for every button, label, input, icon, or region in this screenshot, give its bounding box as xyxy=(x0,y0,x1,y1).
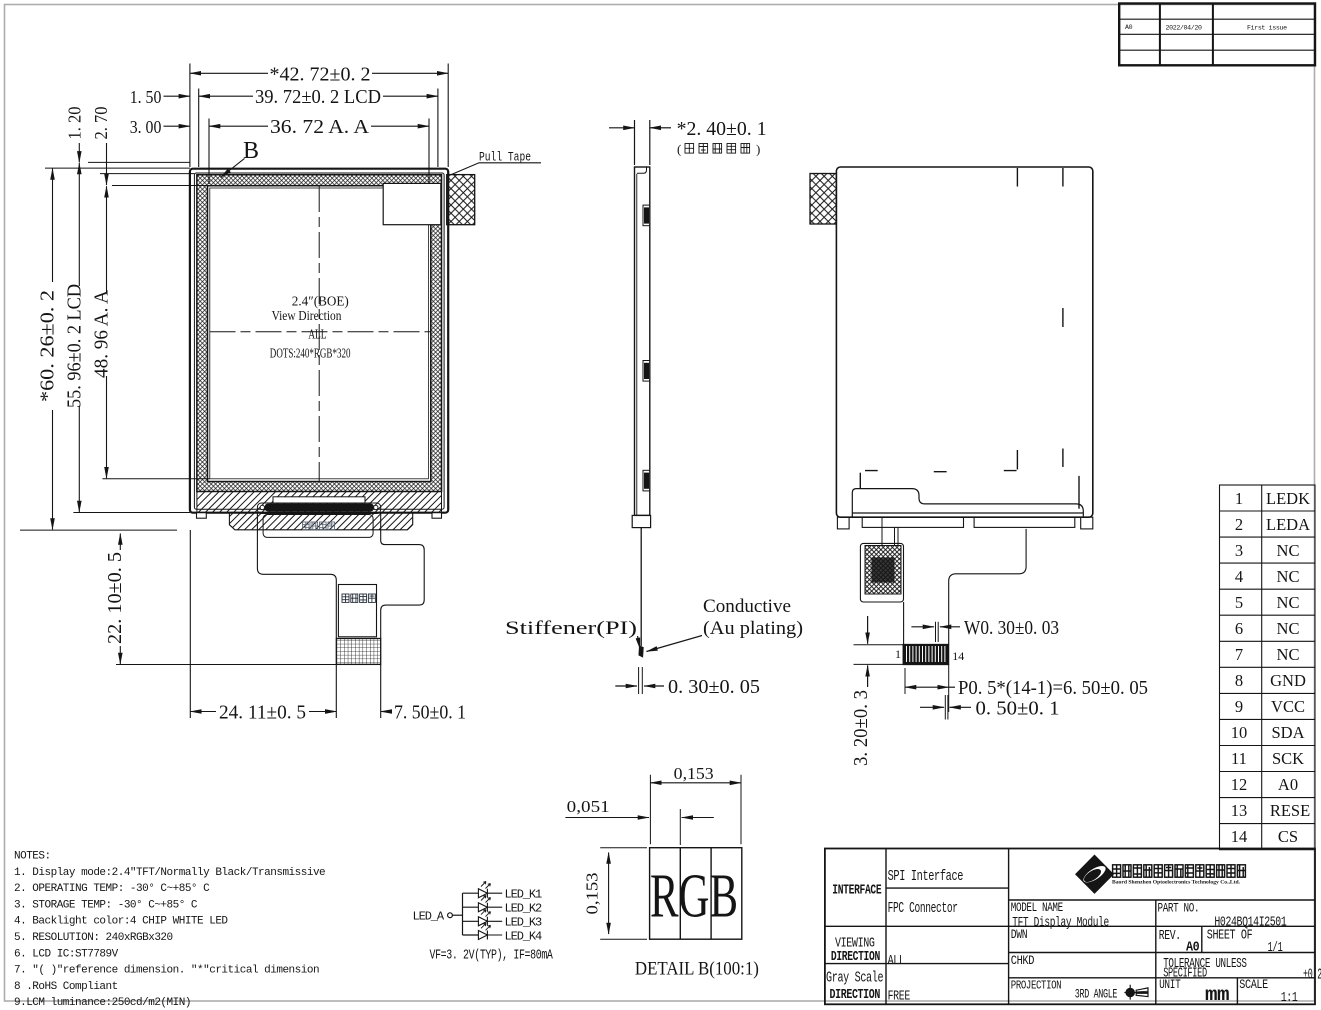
svg-text:SDA: SDA xyxy=(1271,723,1304,742)
svg-text:1. Display mode:2.4″TFT/Normal: 1. Display mode:2.4″TFT/Normally Black/T… xyxy=(14,867,325,879)
svg-text:4. Backlight color:4 CHIP WHIT: 4. Backlight color:4 CHIP WHITE LED xyxy=(14,916,228,928)
svg-text:3. STORAGE TEMP: -30° C~+85° C: 3. STORAGE TEMP: -30° C~+85° C xyxy=(14,899,198,911)
svg-text:PROJECTION: PROJECTION xyxy=(1011,979,1062,993)
svg-text:3. 20±0. 3: 3. 20±0. 3 xyxy=(850,690,872,766)
svg-text:Gray Scale: Gray Scale xyxy=(826,970,884,987)
svg-text:DOTS:240*RGB*320: DOTS:240*RGB*320 xyxy=(270,346,351,361)
svg-text:12: 12 xyxy=(1231,775,1248,794)
svg-text:mm: mm xyxy=(1205,984,1229,1006)
svg-text:LEDA: LEDA xyxy=(1266,515,1310,534)
svg-text:1. 50: 1. 50 xyxy=(130,87,162,107)
svg-text:3: 3 xyxy=(1235,541,1243,560)
svg-text:2. OPERATING TEMP: -30° C~+85°: 2. OPERATING TEMP: -30° C~+85° C xyxy=(14,883,210,895)
svg-text:48. 96 A. A: 48. 96 A. A xyxy=(91,289,113,378)
svg-text:22. 10±0. 5: 22. 10±0. 5 xyxy=(104,552,126,644)
svg-text:DIRECTION: DIRECTION xyxy=(831,949,880,965)
svg-text:LED_K4: LED_K4 xyxy=(505,929,543,943)
svg-text:7. ″( )″reference dimension. ″: 7. ″( )″reference dimension. ″*″critical… xyxy=(14,965,319,977)
svg-text:39. 72±0. 2 LCD: 39. 72±0. 2 LCD xyxy=(255,86,381,108)
svg-text:VF=3. 2V(TYP), IF=80mA: VF=3. 2V(TYP), IF=80mA xyxy=(430,948,554,963)
svg-text:LED_K2: LED_K2 xyxy=(505,902,543,916)
svg-text:Pull Tape: Pull Tape xyxy=(479,150,531,165)
svg-text:LED_K1: LED_K1 xyxy=(505,888,543,902)
svg-text:SPI Interface: SPI Interface xyxy=(888,869,964,885)
svg-text:±0.2: ±0.2 xyxy=(1303,967,1321,984)
svg-text:NC: NC xyxy=(1277,541,1300,560)
svg-text:36. 72 A. A: 36. 72 A. A xyxy=(270,116,370,138)
svg-text:10: 10 xyxy=(1231,723,1248,742)
svg-text:SCK: SCK xyxy=(1272,749,1304,768)
svg-text:A0: A0 xyxy=(1186,941,1200,956)
svg-text:2. 70: 2. 70 xyxy=(91,107,111,140)
svg-text:P0. 5*(14-1)=6. 50±0. 05: P0. 5*(14-1)=6. 50±0. 05 xyxy=(958,677,1148,699)
svg-text:LED_A: LED_A xyxy=(413,910,445,924)
svg-text:0,051: 0,051 xyxy=(567,797,610,816)
svg-text:PART NO.: PART NO. xyxy=(1158,901,1200,916)
svg-text:NC: NC xyxy=(1277,593,1300,612)
svg-text:3RD ANGLE: 3RD ANGLE xyxy=(1075,987,1117,1001)
svg-text:DWN: DWN xyxy=(1011,927,1027,942)
svg-text:(: ( xyxy=(677,142,681,157)
svg-text:UNIT: UNIT xyxy=(1159,977,1181,992)
svg-text:5: 5 xyxy=(1235,593,1243,612)
svg-text:A0: A0 xyxy=(1125,24,1133,31)
svg-text:LEDK: LEDK xyxy=(1266,489,1310,508)
svg-text:*60. 26±0. 2: *60. 26±0. 2 xyxy=(37,290,59,402)
svg-text:DIRECTION: DIRECTION xyxy=(830,987,881,1003)
svg-text:14: 14 xyxy=(1231,827,1248,846)
svg-text:7. 50±0. 1: 7. 50±0. 1 xyxy=(394,702,466,724)
svg-text:Stiffener(PI): Stiffener(PI) xyxy=(505,618,637,639)
svg-text:9: 9 xyxy=(1235,697,1243,716)
svg-text:Conductive: Conductive xyxy=(703,596,791,617)
svg-text:NC: NC xyxy=(1277,567,1300,586)
svg-text:14: 14 xyxy=(952,649,964,663)
svg-text:*42. 72±0. 2: *42. 72±0. 2 xyxy=(270,63,371,85)
svg-text:VCC: VCC xyxy=(1271,697,1305,716)
svg-text:W0. 30±0. 03: W0. 30±0. 03 xyxy=(964,617,1059,639)
svg-text:0,153: 0,153 xyxy=(583,873,602,915)
svg-text:4: 4 xyxy=(1235,567,1243,586)
svg-text:View Direction: View Direction xyxy=(272,308,342,323)
svg-text:LED_K3: LED_K3 xyxy=(505,916,543,930)
svg-text:2: 2 xyxy=(1235,515,1243,534)
svg-text:B: B xyxy=(243,138,259,164)
svg-text:INTERFACE: INTERFACE xyxy=(832,883,881,899)
svg-text:9.LCM luminance:250cd/m2(MIN): 9.LCM luminance:250cd/m2(MIN) xyxy=(14,997,191,1009)
svg-text:(Au plating): (Au plating) xyxy=(703,618,803,639)
svg-text:1. 20: 1. 20 xyxy=(64,107,84,140)
svg-text:CS: CS xyxy=(1278,827,1298,846)
svg-text:11: 11 xyxy=(1231,749,1247,768)
svg-text:5. RESOLUTION: 240xRGBx320: 5. RESOLUTION: 240xRGBx320 xyxy=(14,932,173,944)
svg-text:NC: NC xyxy=(1277,619,1300,638)
svg-text:NOTES:: NOTES: xyxy=(14,851,51,863)
svg-text:8 .RoHS Compliant: 8 .RoHS Compliant xyxy=(14,981,118,993)
svg-text:RGB: RGB xyxy=(650,863,738,931)
svg-text:6. LCD IC:ST7789V: 6. LCD IC:ST7789V xyxy=(14,948,119,960)
svg-text:Baord Shenzhen Optoelectronics: Baord Shenzhen Optoelectronics Technolog… xyxy=(1112,880,1241,886)
svg-text:8: 8 xyxy=(1235,671,1243,690)
svg-text:GND: GND xyxy=(1270,671,1306,690)
svg-text:DETAIL B(100:1): DETAIL B(100:1) xyxy=(635,959,759,980)
svg-text:A0: A0 xyxy=(1278,775,1298,794)
svg-text:SCALE: SCALE xyxy=(1239,977,1268,992)
svg-text:*2. 40±0. 1: *2. 40±0. 1 xyxy=(677,118,767,140)
svg-text:3. 00: 3. 00 xyxy=(130,117,162,137)
svg-text:ALL: ALL xyxy=(308,327,326,342)
svg-text:0. 30±0. 05: 0. 30±0. 05 xyxy=(668,676,760,698)
svg-text:MODEL NAME: MODEL NAME xyxy=(1011,900,1063,915)
svg-text:0. 50±0. 1: 0. 50±0. 1 xyxy=(976,697,1060,719)
svg-text:First issue: First issue xyxy=(1247,25,1287,32)
svg-text:NC: NC xyxy=(1277,645,1300,664)
svg-text:1: 1 xyxy=(1235,489,1243,508)
svg-text:24. 11±0. 5: 24. 11±0. 5 xyxy=(219,702,306,724)
svg-text:SHEET OF: SHEET OF xyxy=(1207,929,1253,944)
svg-text:REV.: REV. xyxy=(1159,929,1181,944)
svg-text:55. 96±0. 2 LCD: 55. 96±0. 2 LCD xyxy=(63,284,85,408)
svg-text:CHKD: CHKD xyxy=(1011,953,1035,968)
svg-text:): ) xyxy=(756,142,760,157)
svg-text:FREE: FREE xyxy=(888,989,910,1005)
svg-text:13: 13 xyxy=(1231,801,1248,820)
svg-text:6: 6 xyxy=(1235,619,1243,638)
svg-text:0,153: 0,153 xyxy=(674,764,714,783)
svg-text:1/1: 1/1 xyxy=(1268,940,1283,956)
svg-text:1: 1 xyxy=(895,647,901,661)
svg-text:RESE: RESE xyxy=(1270,801,1310,820)
svg-text:2022/04/20: 2022/04/20 xyxy=(1166,25,1202,32)
svg-text:ALL: ALL xyxy=(888,953,905,969)
svg-text:FPC Connector: FPC Connector xyxy=(888,901,958,917)
svg-text:7: 7 xyxy=(1235,645,1243,664)
svg-text:1:1: 1:1 xyxy=(1281,990,1298,1006)
